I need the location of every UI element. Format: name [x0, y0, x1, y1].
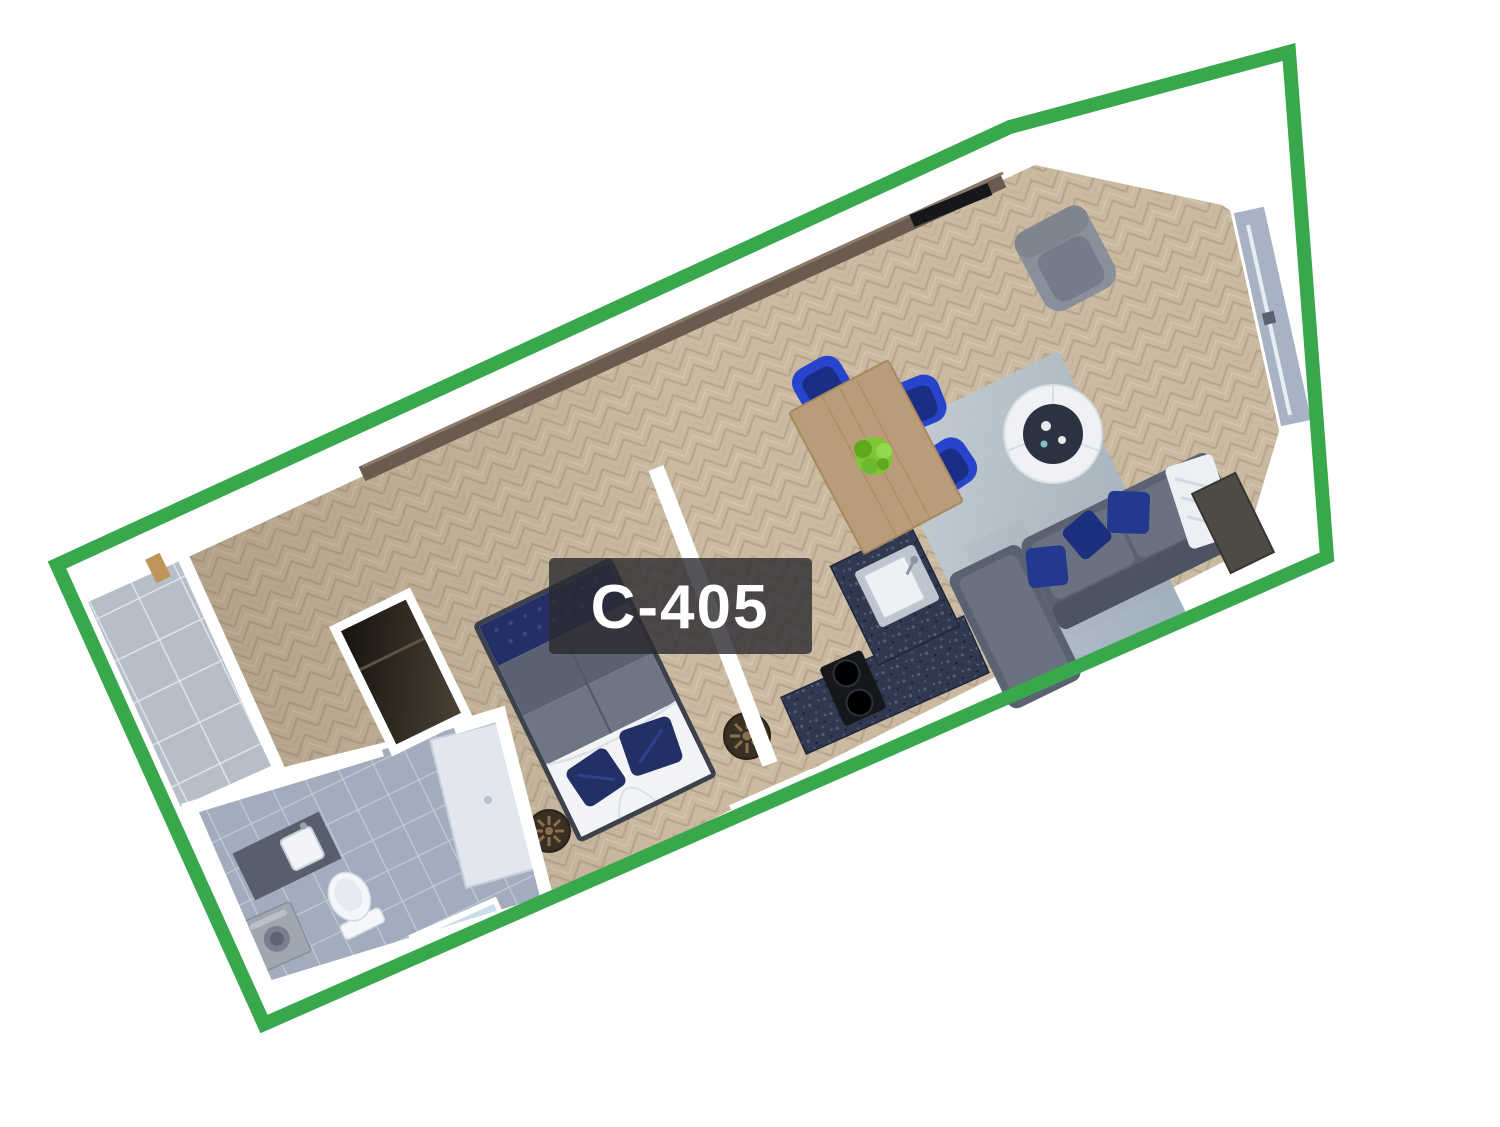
unit-label: C-405 [549, 558, 812, 654]
floor-plan-page: C-405 [0, 0, 1500, 1127]
floor-plan: C-405 [0, 0, 1500, 1127]
unit-label-text: C-405 [591, 573, 770, 642]
coffee-table [1004, 385, 1102, 483]
